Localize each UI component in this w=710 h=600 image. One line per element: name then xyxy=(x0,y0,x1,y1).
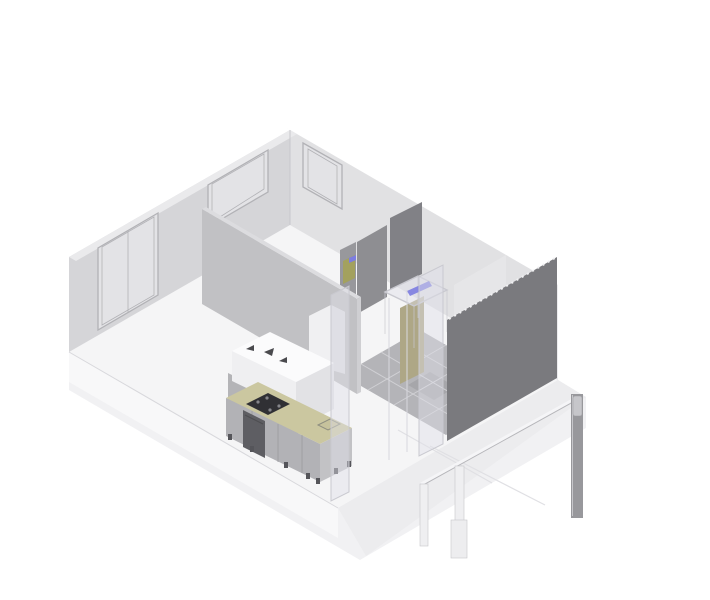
cabinet-foot xyxy=(284,462,288,468)
railing-post xyxy=(420,484,428,546)
cabinet-foot xyxy=(306,473,310,479)
corner-post-cap xyxy=(573,396,582,416)
isometric-apartment-viewport[interactable] xyxy=(0,0,710,600)
burner xyxy=(265,396,268,399)
cabinet-foot xyxy=(316,478,320,484)
burner xyxy=(277,404,280,407)
burner xyxy=(268,408,271,411)
glass-wall-right xyxy=(419,265,443,456)
main-partition-edge xyxy=(357,297,361,394)
cabinet-foot xyxy=(250,446,254,452)
glass-wall-left xyxy=(331,286,349,501)
cabinet-foot xyxy=(228,434,232,440)
burner xyxy=(256,400,259,403)
railing-post-base xyxy=(451,520,467,558)
